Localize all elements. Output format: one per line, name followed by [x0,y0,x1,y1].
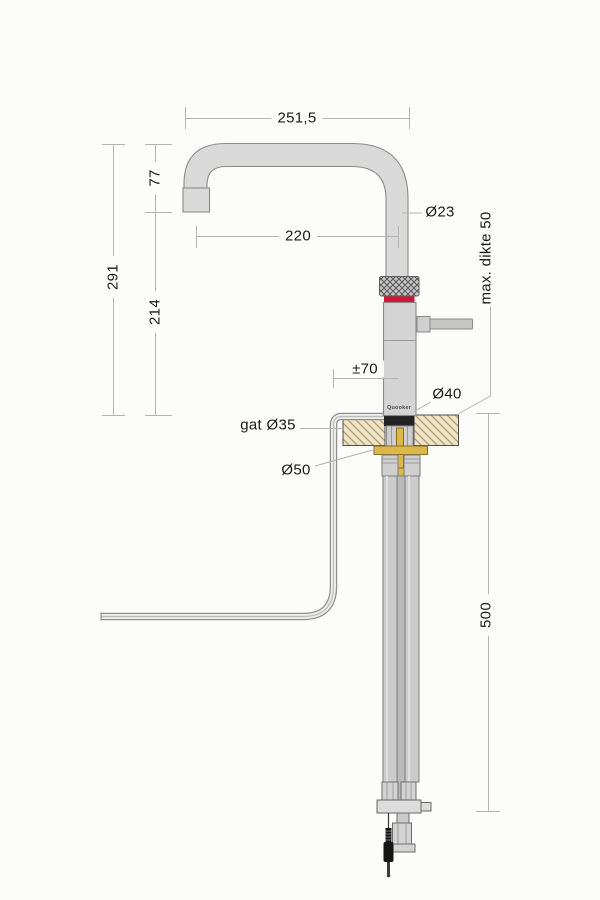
leader-plate-diameter [315,449,376,466]
brass-mounting-plate [374,446,428,455]
body-diameter-label: Ø40 [432,387,461,402]
knurled-ring [380,277,420,297]
flexible-hose [101,417,388,621]
spout-diameter-label: Ø23 [425,205,454,220]
dim-spout-drop-label: 77 [147,161,164,194]
max-thickness-label: max. dikte 50 [479,211,494,304]
hose-connector-right-top [404,455,420,476]
spout-outlet-aerator [183,188,210,212]
dim-total-height-label: 291 [105,256,122,298]
dim-spout-width-label: 251,5 [271,110,322,127]
red-indicator-band [384,297,415,303]
hose-middle [397,476,405,813]
hose-connector-right-bottom [401,782,416,800]
tap-above-counter [183,144,473,416]
hose-left [383,476,397,782]
plate-diameter-label: Ø50 [281,463,310,478]
hose-connector-left-top [382,455,398,476]
tap-body [384,303,417,416]
clamp-block [377,800,421,813]
drawing-svg [0,0,600,900]
hole-diameter-label: gat Ø35 [240,418,295,433]
swivel-offset-label: ±70 [346,361,384,378]
countertop-right [414,415,459,446]
handle-lever [417,317,473,333]
dim-reach-label: 220 [279,228,317,245]
clamp-block-tab [421,803,431,812]
dim-base-height-label: 214 [147,291,164,333]
hose-connector-left-bottom [382,782,398,800]
below-counter-assembly [374,415,431,877]
brand-logo-text: Quooker [387,405,411,411]
technical-drawing-canvas: 251,5 291 77 214 220 Ø23 max. dikte 50 ±… [0,0,600,900]
spout [184,144,408,278]
base-ring-black [384,415,415,426]
hose-right [405,476,419,782]
below-counter-length-label: 500 [478,594,495,636]
